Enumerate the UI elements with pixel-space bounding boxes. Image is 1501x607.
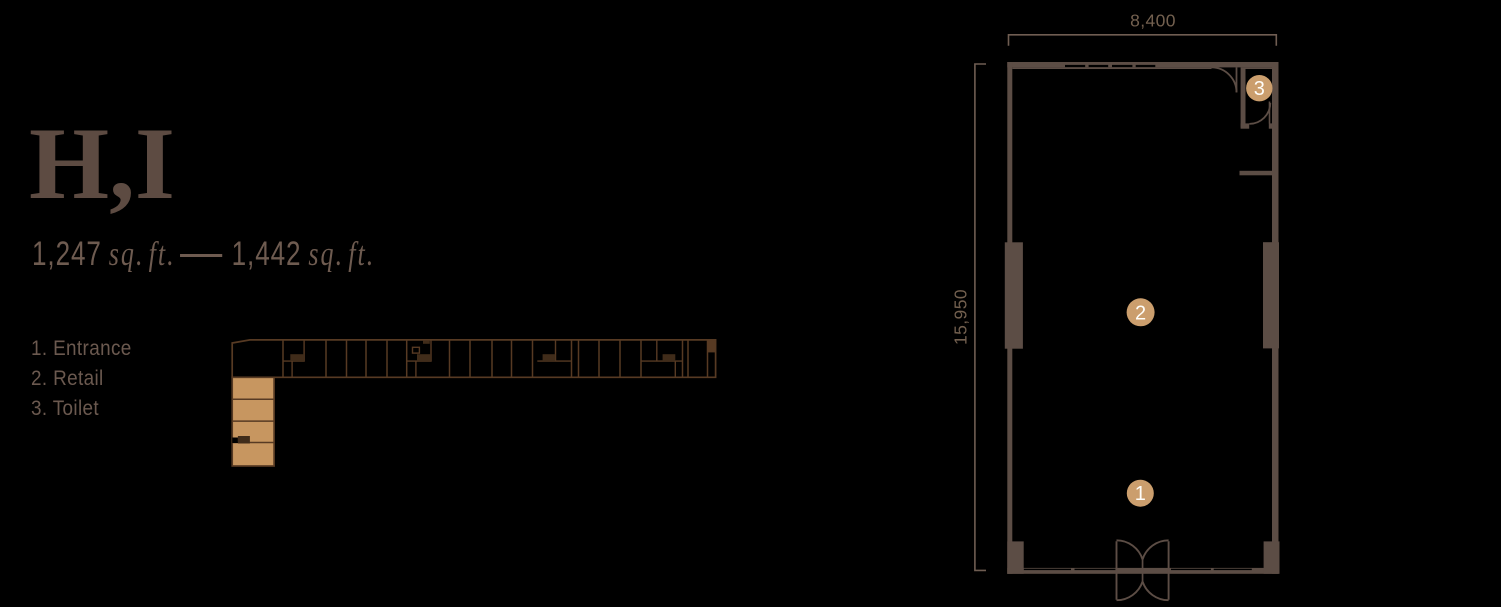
svg-text:8,400: 8,400 <box>1130 11 1176 31</box>
svg-text:15,950: 15,950 <box>951 289 971 345</box>
svg-text:2: 2 <box>1135 303 1146 325</box>
svg-text:1: 1 <box>1135 483 1146 505</box>
svg-text:3: 3 <box>1254 78 1265 100</box>
